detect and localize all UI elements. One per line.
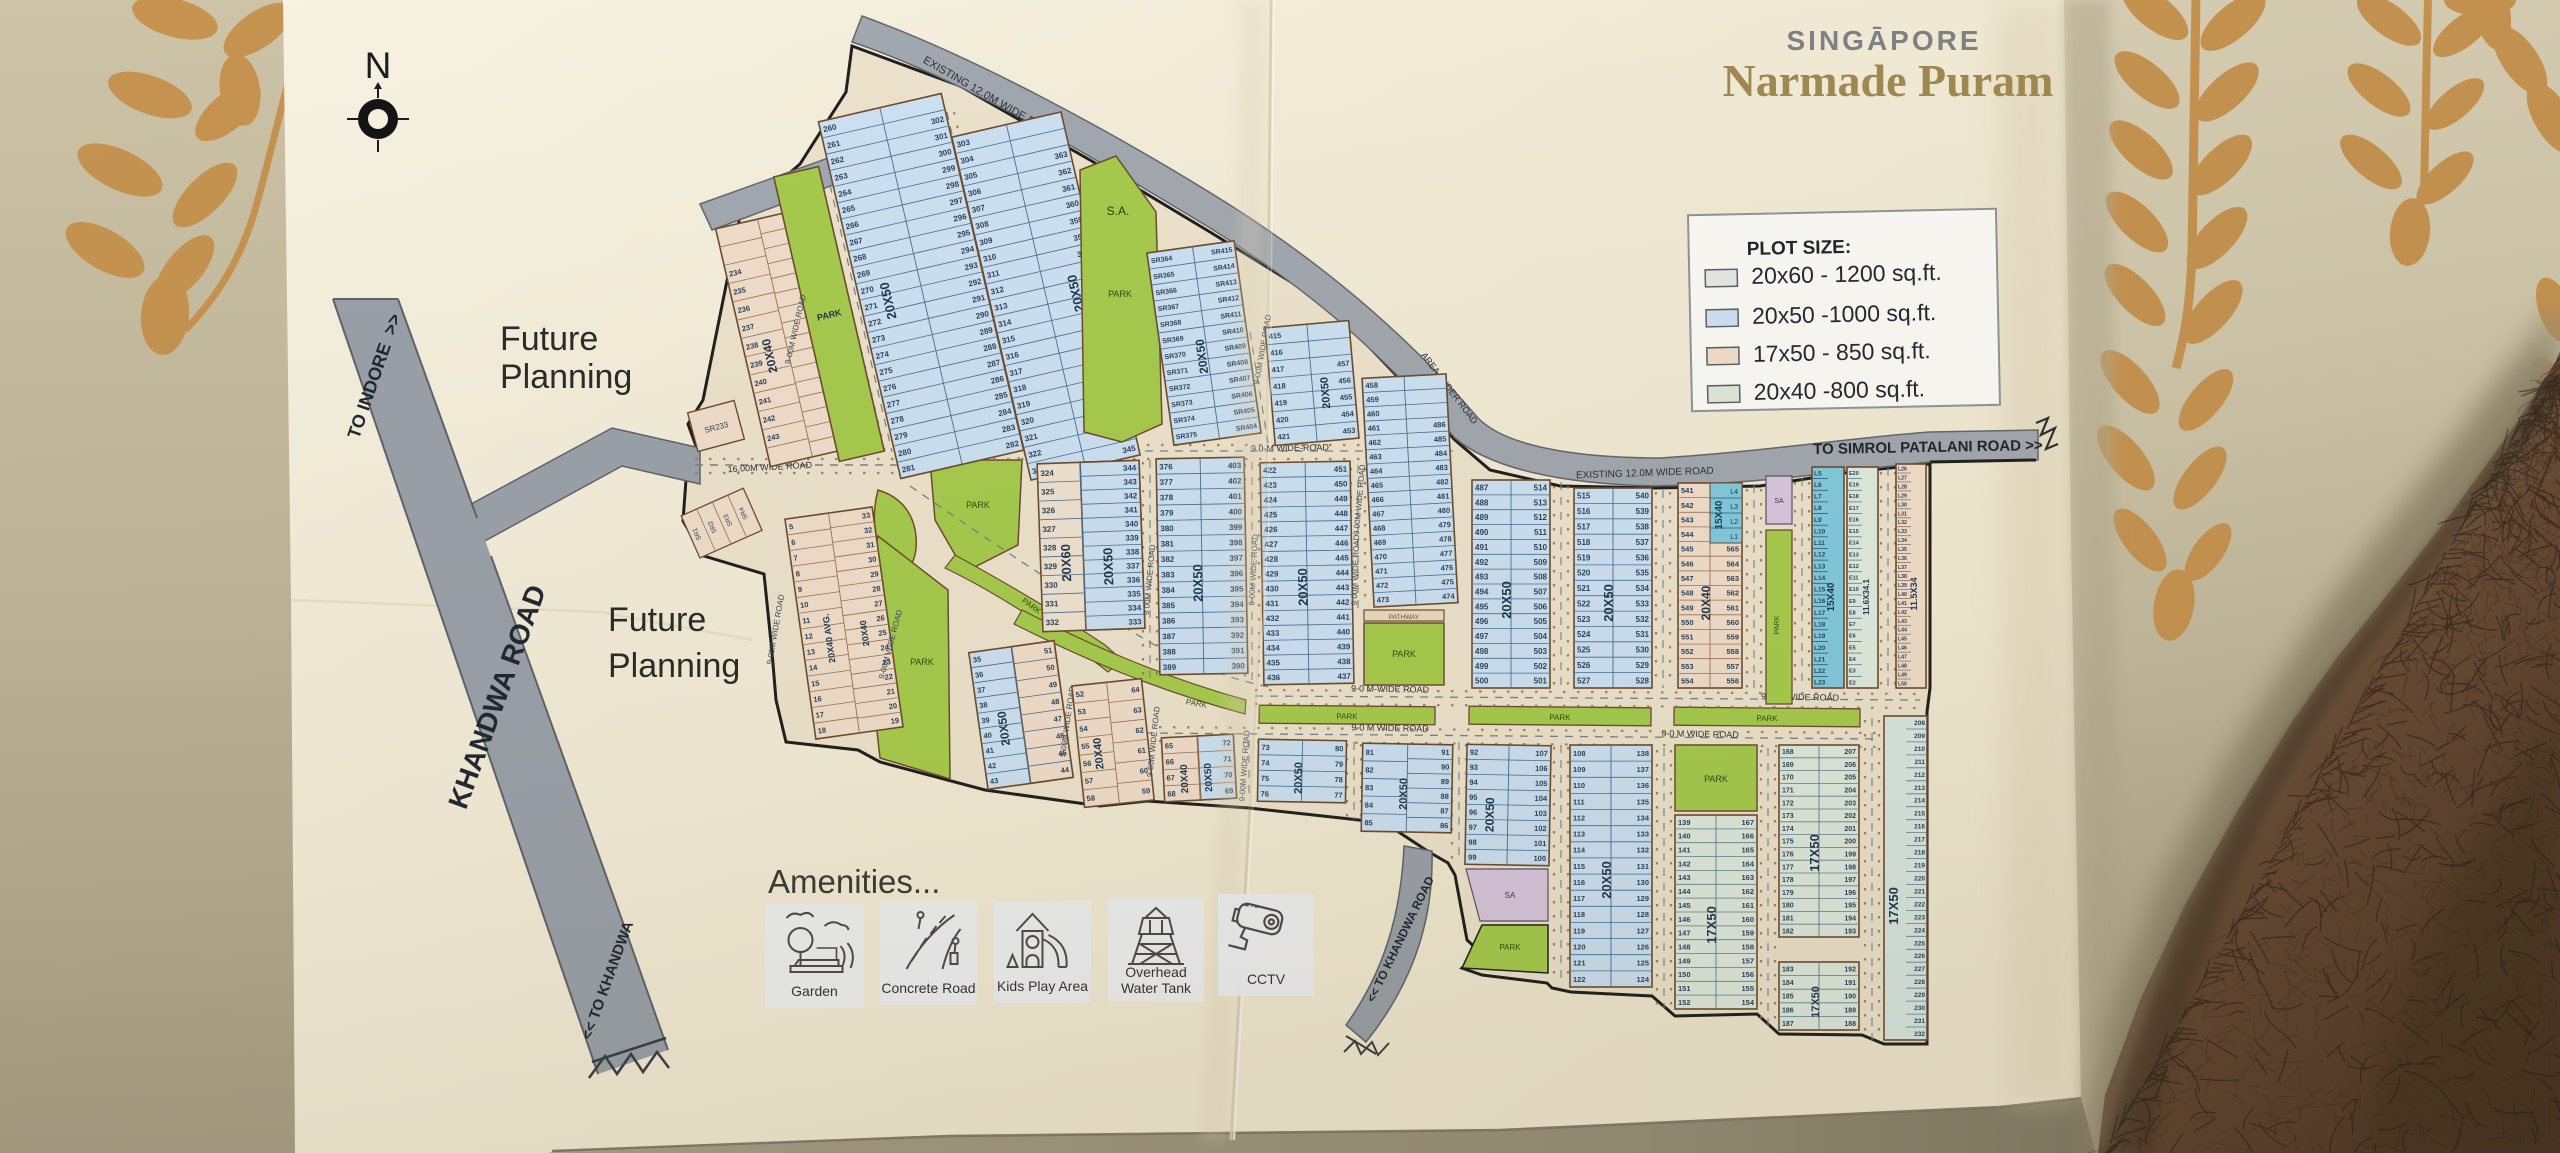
svg-text:L13: L13 [1814,563,1826,570]
svg-text:E18: E18 [1849,494,1859,500]
svg-text:L2: L2 [1730,519,1738,526]
svg-text:28: 28 [872,584,882,594]
svg-text:563: 563 [1726,574,1739,583]
svg-text:99: 99 [1468,853,1476,862]
svg-text:157: 157 [1741,956,1754,965]
svg-text:337: 337 [1126,561,1140,570]
svg-text:94: 94 [1469,778,1478,787]
svg-text:143: 143 [1678,873,1691,882]
svg-text:PARK: PARK [1499,943,1521,952]
svg-text:37: 37 [977,685,987,695]
svg-text:PARK: PARK [1108,289,1132,299]
svg-text:189: 189 [1844,1007,1856,1014]
svg-text:502: 502 [1534,662,1548,671]
svg-text:E2: E2 [1849,680,1856,686]
svg-text:L29: L29 [1898,493,1907,499]
svg-text:419: 419 [1274,398,1287,408]
svg-text:L5: L5 [1814,470,1822,477]
svg-text:435: 435 [1266,658,1280,667]
svg-text:E19: E19 [1849,483,1859,489]
svg-text:511: 511 [1534,528,1547,537]
svg-text:Overhead: Overhead [1125,964,1186,980]
svg-text:448: 448 [1335,509,1349,518]
svg-text:152: 152 [1678,998,1691,1007]
svg-text:231: 231 [1914,1018,1925,1025]
svg-text:67: 67 [1166,773,1175,782]
svg-text:458: 458 [1365,381,1378,391]
svg-text:177: 177 [1782,864,1794,871]
svg-text:PARK: PARK [1774,615,1781,634]
svg-text:17X50: 17X50 [1807,834,1822,872]
svg-text:E7: E7 [1849,622,1856,628]
svg-text:Future: Future [608,601,706,639]
svg-text:379: 379 [1160,508,1174,517]
svg-text:L21: L21 [1814,656,1826,663]
svg-text:466: 466 [1371,495,1384,505]
svg-text:332: 332 [1045,618,1059,627]
svg-text:15X40: 15X40 [1714,500,1725,529]
svg-text:52: 52 [1075,689,1084,699]
svg-text:57: 57 [1084,776,1093,786]
svg-text:550: 550 [1681,618,1694,627]
svg-text:63: 63 [1133,705,1142,715]
svg-text:66: 66 [1165,757,1174,766]
svg-text:146: 146 [1678,915,1691,924]
svg-text:109: 109 [1573,765,1586,774]
svg-text:L27: L27 [1898,475,1907,481]
svg-text:193: 193 [1844,928,1856,935]
svg-text:E16: E16 [1849,517,1859,523]
svg-text:124: 124 [1636,975,1649,984]
svg-text:Narmade Puram: Narmade Puram [1723,55,2054,106]
svg-text:329: 329 [1044,562,1058,571]
svg-text:484: 484 [1434,449,1448,459]
svg-text:81: 81 [1366,748,1374,757]
svg-text:55: 55 [1081,741,1090,751]
svg-text:PARK: PARK [1392,649,1416,659]
svg-text:340: 340 [1125,519,1139,528]
svg-text:544: 544 [1681,530,1694,539]
svg-text:451: 451 [1334,465,1348,474]
svg-text:471: 471 [1375,566,1388,576]
svg-text:472: 472 [1376,581,1389,591]
svg-text:489: 489 [1475,513,1489,522]
svg-text:Planning: Planning [608,647,740,685]
svg-text:138: 138 [1636,749,1649,758]
svg-text:229: 229 [1914,992,1925,999]
svg-text:228: 228 [1914,979,1925,986]
svg-text:459: 459 [1366,395,1379,405]
svg-text:456: 456 [1338,376,1351,386]
svg-text:436: 436 [1267,673,1281,682]
svg-text:42: 42 [987,761,997,771]
svg-text:18: 18 [817,725,827,735]
svg-text:429: 429 [1265,569,1279,578]
svg-text:387: 387 [1162,632,1176,641]
svg-text:534: 534 [1636,584,1650,593]
svg-text:216: 216 [1914,824,1925,831]
svg-text:L18: L18 [1814,622,1826,629]
svg-text:162: 162 [1741,887,1754,896]
svg-text:187: 187 [1782,1021,1794,1028]
svg-text:S.A.: S.A. [1107,204,1130,218]
svg-text:473: 473 [1376,595,1389,605]
svg-text:455: 455 [1339,392,1352,402]
svg-text:431: 431 [1265,599,1279,608]
svg-text:158: 158 [1741,943,1754,952]
svg-text:17X50: 17X50 [1886,887,1901,925]
svg-text:L48: L48 [1898,664,1907,670]
svg-text:35: 35 [972,655,982,665]
svg-text:128: 128 [1636,910,1649,919]
svg-text:420: 420 [1276,415,1289,425]
svg-text:61: 61 [1137,746,1146,756]
svg-text:383: 383 [1161,570,1175,579]
svg-text:224: 224 [1914,927,1925,934]
svg-text:L50: L50 [1898,682,1907,688]
svg-text:127: 127 [1636,926,1649,935]
svg-text:510: 510 [1534,543,1548,552]
svg-text:L20: L20 [1814,645,1826,652]
svg-text:194: 194 [1844,916,1856,923]
svg-text:L40: L40 [1898,592,1907,598]
svg-text:E13: E13 [1849,552,1859,558]
svg-text:150: 150 [1678,970,1691,979]
svg-text:201: 201 [1844,826,1856,833]
svg-text:441: 441 [1336,613,1350,622]
svg-text:L44: L44 [1898,628,1907,634]
svg-text:PLOT SIZE:: PLOT SIZE: [1746,237,1851,260]
svg-text:83: 83 [1365,783,1373,792]
svg-text:551: 551 [1681,633,1694,642]
svg-text:104: 104 [1535,794,1548,803]
svg-text:328: 328 [1043,543,1057,552]
svg-text:222: 222 [1914,901,1925,908]
svg-text:195: 195 [1844,903,1856,910]
svg-text:469: 469 [1373,538,1386,548]
svg-text:80: 80 [1335,744,1343,753]
svg-text:SA: SA [1505,891,1516,900]
svg-text:474: 474 [1442,591,1456,601]
svg-text:CCTV: CCTV [1247,971,1286,987]
svg-text:139: 139 [1678,818,1691,827]
svg-text:87: 87 [1440,806,1448,815]
svg-text:205: 205 [1844,775,1856,782]
svg-text:495: 495 [1475,602,1489,611]
svg-text:385: 385 [1162,601,1176,610]
svg-text:97: 97 [1469,823,1477,832]
svg-text:59: 59 [1141,786,1150,796]
svg-text:L15: L15 [1814,587,1826,594]
svg-text:470: 470 [1374,552,1387,562]
svg-text:172: 172 [1782,800,1794,807]
svg-text:509: 509 [1534,558,1548,567]
svg-text:430: 430 [1265,584,1279,593]
svg-text:119: 119 [1573,926,1585,935]
svg-text:203: 203 [1844,800,1856,807]
svg-text:439: 439 [1337,642,1351,651]
svg-text:165: 165 [1741,846,1754,855]
svg-text:19: 19 [890,716,900,726]
svg-text:438: 438 [1337,657,1351,666]
svg-text:L7: L7 [1814,494,1822,501]
svg-text:223: 223 [1914,914,1925,921]
svg-text:538: 538 [1636,523,1650,532]
svg-text:416: 416 [1270,348,1283,358]
svg-text:179: 179 [1782,890,1794,897]
svg-text:501: 501 [1534,677,1548,686]
svg-text:505: 505 [1534,617,1548,626]
svg-text:PARK: PARK [910,657,934,667]
svg-text:199: 199 [1844,852,1856,859]
svg-text:L36: L36 [1898,556,1907,562]
svg-text:20X50: 20X50 [1295,568,1311,606]
svg-text:188: 188 [1844,1021,1856,1028]
svg-text:Concrete Road: Concrete Road [881,980,975,996]
svg-text:E17: E17 [1849,506,1859,512]
svg-text:554: 554 [1681,677,1694,686]
svg-text:Garden: Garden [791,983,838,999]
svg-text:543: 543 [1681,516,1694,525]
svg-text:141: 141 [1678,846,1691,855]
svg-text:493: 493 [1475,573,1489,582]
svg-text:477: 477 [1440,549,1453,559]
svg-text:545: 545 [1681,545,1694,554]
svg-text:134: 134 [1636,814,1649,823]
svg-text:101: 101 [1534,839,1547,848]
svg-text:170: 170 [1782,775,1794,782]
svg-text:388: 388 [1162,647,1176,656]
svg-text:531: 531 [1636,630,1650,639]
svg-text:110: 110 [1573,781,1585,790]
svg-text:198: 198 [1844,864,1856,871]
svg-text:217: 217 [1914,837,1925,844]
svg-text:492: 492 [1475,558,1489,567]
svg-text:496: 496 [1475,617,1489,626]
svg-text:475: 475 [1441,577,1454,587]
svg-text:L17: L17 [1814,610,1826,617]
svg-text:20X60: 20X60 [1058,544,1074,582]
svg-text:48: 48 [1051,697,1061,707]
svg-text:38: 38 [979,700,989,710]
svg-text:131: 131 [1636,862,1649,871]
svg-text:227: 227 [1914,966,1925,973]
svg-text:520: 520 [1577,569,1591,578]
svg-text:483: 483 [1435,463,1448,473]
svg-text:380: 380 [1160,524,1174,533]
svg-text:504: 504 [1534,632,1548,641]
svg-text:120: 120 [1573,943,1586,952]
svg-text:503: 503 [1534,647,1548,656]
svg-text:20X40: 20X40 [1179,764,1192,794]
svg-text:129: 129 [1636,894,1649,903]
svg-text:212: 212 [1914,772,1925,779]
svg-text:L16: L16 [1814,598,1826,605]
svg-text:219: 219 [1914,863,1925,870]
svg-text:17x50 - 850 sq.ft.: 17x50 - 850 sq.ft. [1753,337,1931,367]
svg-text:L43: L43 [1898,619,1907,625]
svg-text:68: 68 [1167,789,1176,798]
svg-text:L49: L49 [1898,673,1907,679]
svg-text:137: 137 [1636,765,1649,774]
svg-text:Planning: Planning [500,358,632,396]
svg-text:L11: L11 [1814,540,1825,547]
svg-text:86: 86 [1440,821,1448,830]
svg-text:526: 526 [1577,661,1591,670]
svg-text:559: 559 [1726,633,1739,642]
svg-text:43: 43 [989,776,999,786]
svg-text:148: 148 [1678,943,1691,952]
svg-text:SA: SA [1774,498,1784,505]
svg-text:521: 521 [1577,584,1591,593]
svg-text:445: 445 [1335,553,1349,562]
svg-text:115: 115 [1573,862,1585,871]
svg-text:418: 418 [1273,381,1286,391]
svg-text:L28: L28 [1898,484,1907,490]
svg-text:147: 147 [1678,929,1691,938]
svg-text:L3: L3 [1730,504,1738,511]
svg-text:40: 40 [983,730,993,740]
svg-text:161: 161 [1741,901,1754,910]
svg-text:10: 10 [800,600,810,610]
svg-text:209: 209 [1914,733,1925,740]
svg-text:506: 506 [1534,602,1548,611]
svg-text:500: 500 [1475,677,1489,686]
svg-text:528: 528 [1636,676,1650,685]
svg-text:L45: L45 [1898,637,1907,643]
svg-text:341: 341 [1124,505,1138,514]
svg-text:499: 499 [1475,662,1489,671]
svg-text:166: 166 [1741,832,1754,841]
svg-text:333: 333 [1128,617,1142,626]
svg-text:525: 525 [1577,646,1591,655]
svg-text:132: 132 [1636,846,1649,855]
svg-text:498: 498 [1475,647,1489,656]
svg-text:82: 82 [1365,765,1373,774]
svg-text:PARK: PARK [1756,714,1778,723]
svg-text:186: 186 [1782,1007,1794,1014]
svg-text:145: 145 [1678,901,1691,910]
svg-text:11: 11 [802,616,811,626]
svg-text:539: 539 [1636,507,1650,516]
svg-text:121: 121 [1573,959,1586,968]
svg-text:76: 76 [1261,789,1269,798]
svg-text:342: 342 [1124,491,1138,500]
svg-text:432: 432 [1266,614,1280,623]
svg-text:E4: E4 [1849,657,1857,663]
svg-text:E14: E14 [1849,541,1860,547]
svg-text:126: 126 [1636,943,1649,952]
svg-text:210: 210 [1914,746,1925,753]
svg-text:326: 326 [1042,506,1056,515]
svg-text:541: 541 [1681,486,1694,495]
svg-text:214: 214 [1914,798,1925,805]
svg-text:453: 453 [1342,426,1355,436]
svg-text:533: 533 [1636,599,1650,608]
svg-text:E3: E3 [1849,669,1856,675]
svg-text:169: 169 [1782,762,1794,769]
svg-text:74: 74 [1261,758,1270,767]
svg-text:50: 50 [1046,663,1056,673]
svg-text:88: 88 [1440,792,1448,801]
svg-text:381: 381 [1161,539,1175,548]
svg-text:20X50: 20X50 [1499,581,1514,619]
svg-text:208: 208 [1914,720,1925,727]
svg-text:344: 344 [1123,463,1137,472]
svg-text:512: 512 [1534,513,1548,522]
svg-text:547: 547 [1681,574,1694,583]
svg-text:213: 213 [1914,785,1925,792]
svg-text:417: 417 [1271,364,1284,374]
svg-text:552: 552 [1681,647,1694,656]
svg-text:376: 376 [1159,462,1173,471]
svg-text:11.6X34.1: 11.6X34.1 [1862,578,1871,615]
svg-text:325: 325 [1041,487,1055,496]
svg-text:334: 334 [1128,603,1142,612]
svg-text:197: 197 [1844,877,1856,884]
svg-text:116: 116 [1573,878,1585,887]
svg-text:PARK: PARK [1549,713,1571,722]
svg-text:PARK: PARK [966,500,990,510]
svg-text:84: 84 [1365,801,1374,810]
svg-text:20X50: 20X50 [1293,762,1306,794]
svg-text:15X40: 15X40 [1826,582,1837,611]
svg-text:125: 125 [1636,959,1649,968]
svg-text:389: 389 [1163,663,1177,672]
svg-text:443: 443 [1336,583,1350,592]
svg-text:98: 98 [1468,838,1476,847]
svg-text:95: 95 [1469,793,1477,802]
svg-text:171: 171 [1782,788,1794,795]
svg-text:562: 562 [1726,589,1739,598]
svg-text:183: 183 [1782,967,1794,974]
svg-text:111: 111 [1573,797,1585,806]
svg-text:26: 26 [876,613,886,623]
svg-text:175: 175 [1782,839,1794,846]
svg-text:15: 15 [811,678,821,688]
svg-text:442: 442 [1336,598,1350,607]
svg-text:E6: E6 [1849,634,1856,640]
svg-text:182: 182 [1782,928,1794,935]
svg-text:515: 515 [1577,492,1591,501]
svg-text:204: 204 [1844,788,1856,795]
svg-text:556: 556 [1726,677,1739,686]
svg-text:L6: L6 [1814,482,1822,489]
svg-text:29: 29 [870,569,880,579]
svg-text:E9: E9 [1849,599,1856,605]
svg-text:181: 181 [1782,916,1794,923]
svg-text:39: 39 [981,715,991,725]
svg-text:184: 184 [1782,980,1794,987]
svg-text:185: 185 [1782,994,1794,1001]
svg-text:SINGĀPORE: SINGĀPORE [1786,25,1981,56]
svg-text:215: 215 [1914,811,1925,818]
svg-text:226: 226 [1914,953,1925,960]
svg-text:176: 176 [1782,852,1794,859]
svg-text:343: 343 [1123,477,1137,486]
svg-text:339: 339 [1125,533,1139,542]
svg-text:91: 91 [1441,748,1449,757]
svg-text:L37: L37 [1898,565,1907,571]
svg-text:17X50: 17X50 [1810,986,1822,1018]
svg-text:546: 546 [1681,559,1694,568]
svg-text:440: 440 [1337,627,1351,636]
svg-text:33: 33 [861,511,871,521]
svg-text:542: 542 [1681,501,1694,510]
svg-text:522: 522 [1577,599,1591,608]
svg-text:105: 105 [1535,779,1548,788]
svg-text:508: 508 [1534,573,1548,582]
